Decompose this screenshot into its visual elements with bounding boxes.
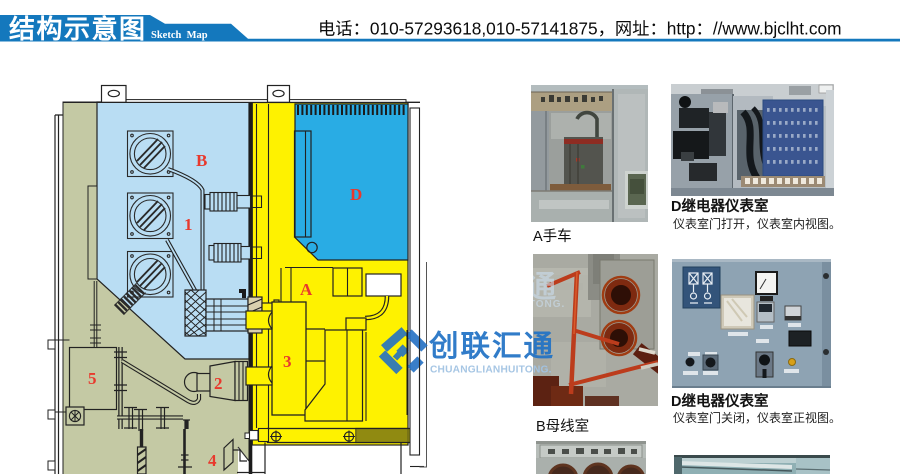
svg-text:1: 1 [184,215,193,234]
svg-text:4: 4 [208,451,217,470]
svg-text:结构示意图: 结构示意图 [9,14,147,44]
svg-text:Sketch Map: Sketch Map [151,30,208,41]
svg-text:D: D [350,185,362,204]
svg-text:电话：010-57293618,010-57141875，网: 电话：010-57293618,010-57141875，网址：http：//w… [318,19,842,39]
svg-text:B母线室: B母线室 [536,418,589,435]
svg-text:A手车: A手车 [533,228,572,245]
svg-text:ITONG.: ITONG. [525,299,565,310]
svg-text:3: 3 [283,352,292,371]
svg-text:创联汇通: 创联汇通 [428,330,555,363]
svg-text:D继电器仪表室: D继电器仪表室 [671,392,768,410]
svg-text:CHUANGLIANHUITONG.: CHUANGLIANHUITONG. [430,365,552,376]
svg-text:5: 5 [88,369,97,388]
svg-text:仪表室门打开，仪表室内视图。: 仪表室门打开，仪表室内视图。 [673,216,841,231]
svg-text:D继电器仪表室: D继电器仪表室 [671,197,768,215]
svg-text:A: A [300,280,313,299]
svg-text:2: 2 [214,374,223,393]
svg-text:B: B [196,151,207,170]
svg-text:仪表室门关闭，仪表室正视图。: 仪表室门关闭，仪表室正视图。 [673,410,841,425]
